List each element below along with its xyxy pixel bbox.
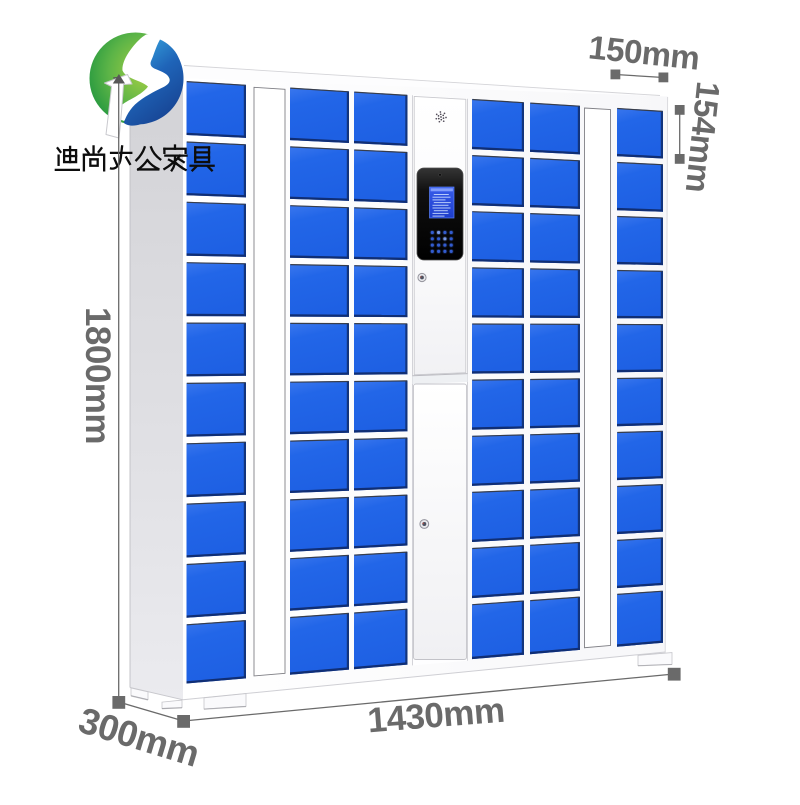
svg-text:1800mm: 1800mm — [78, 307, 117, 444]
